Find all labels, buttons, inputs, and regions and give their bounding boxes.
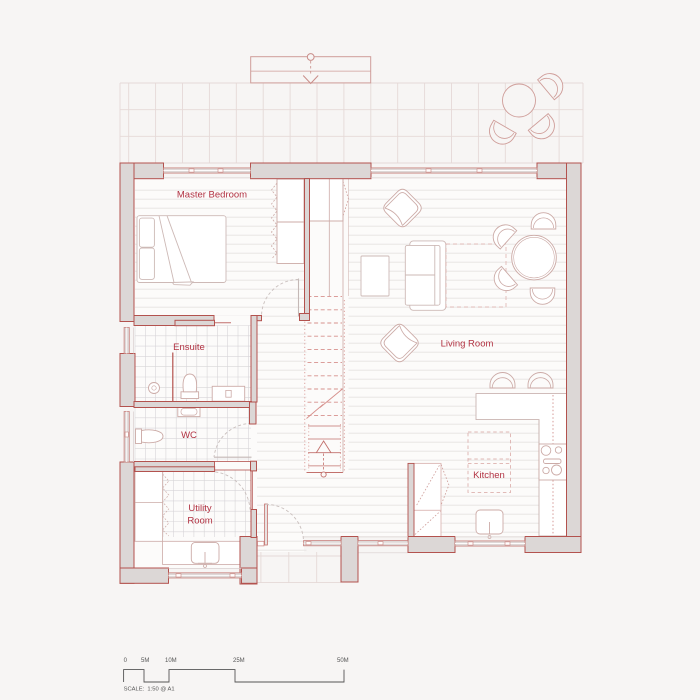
svg-text:10M: 10M [165,658,177,664]
svg-text:50M: 50M [337,658,349,664]
svg-text:Master Bedroom: Master Bedroom [177,190,247,201]
svg-text:Utility: Utility [188,503,211,514]
svg-text:SCALE: 1:50 @ A1: SCALE: 1:50 @ A1 [124,687,175,693]
svg-text:Room: Room [187,516,212,527]
svg-text:Ensuite: Ensuite [173,342,205,353]
svg-text:25M: 25M [233,658,245,664]
svg-text:Kitchen: Kitchen [473,470,505,481]
svg-text:5M: 5M [141,658,149,664]
svg-text:Living Room: Living Room [441,339,494,350]
svg-text:WC: WC [181,430,197,441]
